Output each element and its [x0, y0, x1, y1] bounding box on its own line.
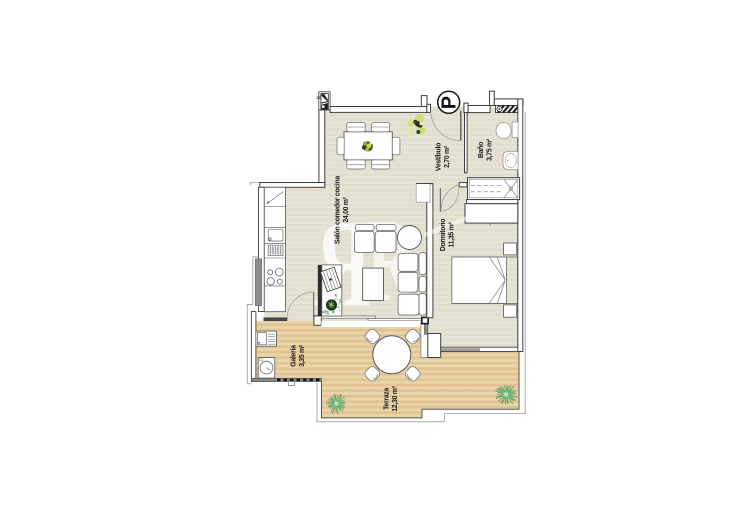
svg-text:Terraza: Terraza — [384, 388, 391, 410]
svg-text:Vestíbulo: Vestíbulo — [436, 143, 443, 171]
svg-text:3,75 m²: 3,75 m² — [487, 138, 494, 161]
svg-text:2,70 m²: 2,70 m² — [444, 145, 451, 168]
svg-text:Galería: Galería — [291, 345, 298, 367]
svg-text:Baño: Baño — [478, 142, 485, 158]
svg-text:24,00 m²: 24,00 m² — [343, 196, 350, 222]
svg-text:11,35 m²: 11,35 m² — [449, 222, 456, 248]
svg-text:P: P — [438, 96, 460, 109]
svg-text:Dormitorio: Dormitorio — [440, 219, 447, 251]
svg-text:Salón comedor cocina: Salón comedor cocina — [335, 176, 342, 244]
svg-text:3,35 m²: 3,35 m² — [299, 344, 306, 367]
svg-text:12,30 m²: 12,30 m² — [392, 385, 399, 411]
